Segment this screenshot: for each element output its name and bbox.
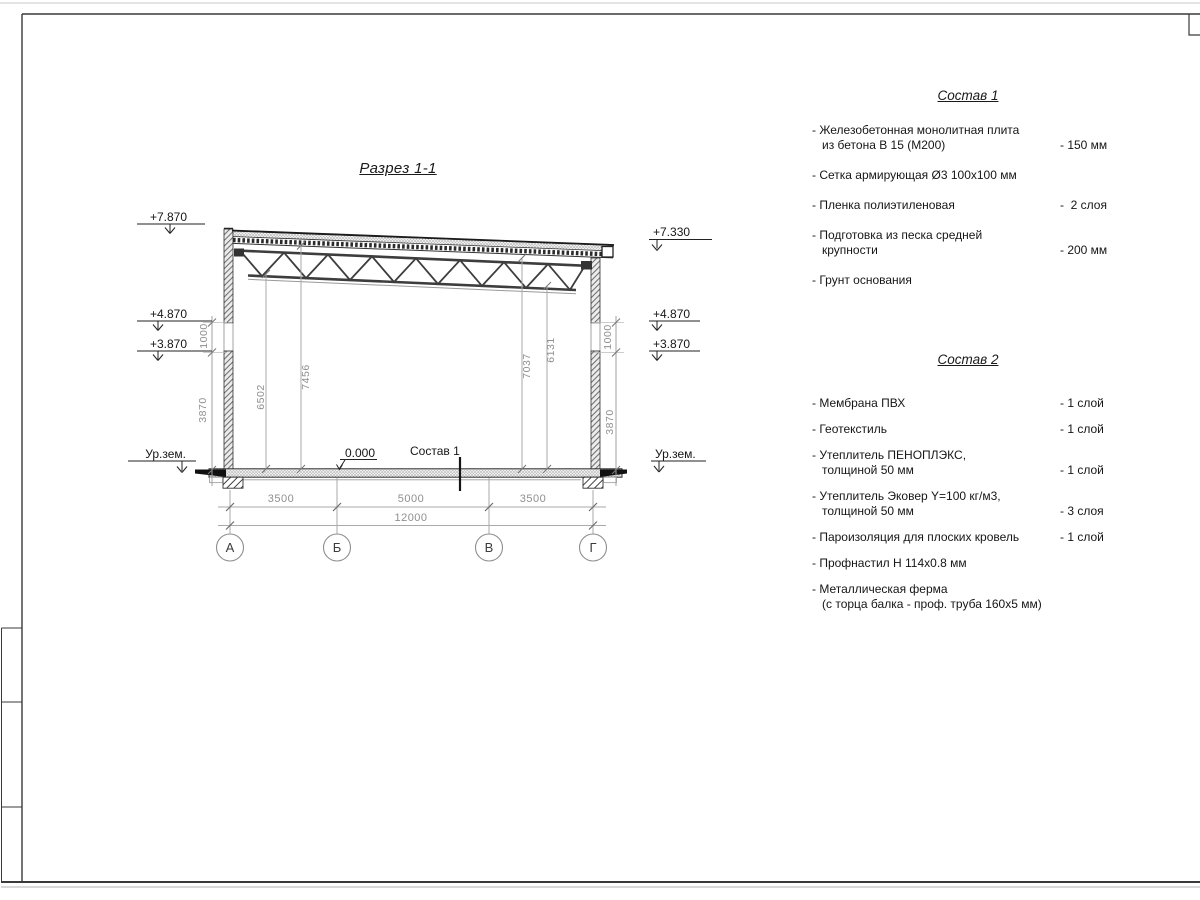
item-name: - Подготовка из песка средней крупности [812, 228, 1060, 258]
list-item: - Мембрана ПВХ - 1 слой [812, 396, 1124, 411]
composition-2-title: Состав 2 [812, 352, 1124, 367]
item-value: - 2 слоя [1060, 198, 1124, 213]
item-name: - Профнастил Н 114х0.8 мм [812, 556, 1060, 571]
elevation-label-right-4870: +4.870 [653, 307, 690, 321]
axis-label-g: Г [579, 540, 607, 555]
axis-label-a: А [216, 540, 244, 555]
ground-level-label-left: Ур.зем. [126, 447, 186, 461]
floor-slab [195, 469, 627, 488]
item-value: - 1 слой [1060, 463, 1124, 478]
foundation-right [583, 477, 603, 488]
list-item: - Пленка полиэтиленовая - 2 слоя [812, 198, 1124, 213]
slab-composition-label: Состав 1 [410, 444, 460, 458]
roof-end-plate [602, 247, 613, 258]
elevation-label-left-7870: +7.870 [135, 210, 187, 224]
axis-label-b: Б [323, 540, 351, 555]
list-item: - Профнастил Н 114х0.8 мм [812, 556, 1124, 571]
item-name: - Утеплитель Эковер Y=100 кг/м3, толщино… [812, 489, 1060, 519]
foundation-left [223, 477, 243, 488]
list-item: - Железобетонная монолитная плита из бет… [812, 123, 1124, 153]
elevation-label-right-3870: +3.870 [653, 337, 690, 351]
composition-1-title: Состав 1 [812, 88, 1124, 103]
item-name: - Утеплитель ПЕНОПЛЭКС, толщиной 50 мм [812, 448, 1060, 478]
dim-left-3870: 3870 [197, 388, 209, 432]
elevation-label-left-3870: +3.870 [135, 337, 187, 351]
ground-level-label-right: Ур.зем. [655, 447, 696, 461]
list-item: - Металлическая ферма (с торца балка - п… [812, 582, 1124, 612]
item-name: - Мембрана ПВХ [812, 396, 1060, 411]
level-mark-right-3870 [649, 351, 700, 361]
item-name: - Сетка армирующая Ø3 100х100 мм [812, 168, 1060, 183]
left-wall-upper [224, 229, 233, 323]
elevation-label-right-7330: +7.330 [653, 225, 690, 239]
item-value: - 150 мм [1060, 138, 1124, 153]
item-value: - 1 слой [1060, 396, 1124, 411]
axis-circles [217, 534, 607, 561]
item-name: - Железобетонная монолитная плита из бет… [812, 123, 1060, 153]
drawing-title: Разрез 1-1 [338, 160, 458, 177]
elevation-label-left-4870: +4.870 [135, 307, 187, 321]
dim-height-6502: 6502 [255, 375, 267, 419]
left-margin-boxes [2, 628, 23, 882]
dim-right-1000: 1000 [602, 315, 614, 359]
dim-span-ab: 3500 [256, 493, 306, 505]
list-item: - Грунт основания [812, 273, 1124, 288]
dim-right-3870: 3870 [604, 400, 616, 444]
level-mark-right-7330 [649, 240, 712, 251]
left-wall-gap [224, 323, 233, 351]
axis-label-v: В [475, 540, 503, 555]
level-mark-left-ground [128, 461, 196, 473]
item-name: - Металлическая ферма (с торца балка - п… [812, 582, 1060, 612]
composition-2-list: Состав 2 - Мембрана ПВХ - 1 слой - Геоте… [812, 352, 1124, 623]
list-item: - Пароизоляция для плоских кровель - 1 с… [812, 530, 1124, 545]
drawing-sheet: Разрез 1-1 +7.870 +4.870 +3.870 Ур.зем. … [0, 0, 1200, 900]
zero-level-label: 0.000 [341, 446, 379, 460]
item-value: - 1 слой [1060, 422, 1124, 437]
dim-height-7456: 7456 [300, 355, 312, 399]
right-wall-lower [591, 351, 600, 470]
item-value: - 200 мм [1060, 243, 1124, 258]
dim-total-12000: 12000 [386, 512, 436, 524]
right-wall-upper [591, 258, 600, 323]
list-item: - Сетка армирующая Ø3 100х100 мм [812, 168, 1124, 183]
corner-stamp-box [1189, 14, 1200, 35]
truss-right-bearing [581, 261, 592, 270]
level-mark-left-7870 [137, 224, 205, 234]
list-item: - Подготовка из песка средней крупности … [812, 228, 1124, 258]
dim-span-vg: 3500 [508, 493, 558, 505]
item-value: - 3 слоя [1060, 504, 1124, 519]
truss-left-bearing [234, 249, 244, 257]
composition-1-list: Состав 1 - Железобетонная монолитная пли… [812, 88, 1124, 303]
list-item: - Утеплитель Эковер Y=100 кг/м3, толщино… [812, 489, 1124, 519]
dim-span-bv: 5000 [386, 493, 436, 505]
dim-height-7037: 7037 [521, 344, 533, 388]
zero-level-leader [337, 460, 378, 470]
level-mark-right-4870 [649, 321, 700, 331]
item-name: - Пароизоляция для плоских кровель [812, 530, 1060, 545]
dim-left-1000: 1000 [198, 314, 210, 358]
list-item: - Геотекстиль - 1 слой [812, 422, 1124, 437]
left-wall-lower [224, 351, 233, 470]
right-wall-gap [591, 323, 600, 351]
level-mark-right-ground [651, 461, 706, 472]
item-name: - Геотекстиль [812, 422, 1060, 437]
dim-height-6131: 6131 [545, 328, 557, 372]
item-name: - Грунт основания [812, 273, 1060, 288]
item-value: - 1 слой [1060, 530, 1124, 545]
item-name: - Пленка полиэтиленовая [812, 198, 1060, 213]
list-item: - Утеплитель ПЕНОПЛЭКС, толщиной 50 мм -… [812, 448, 1124, 478]
